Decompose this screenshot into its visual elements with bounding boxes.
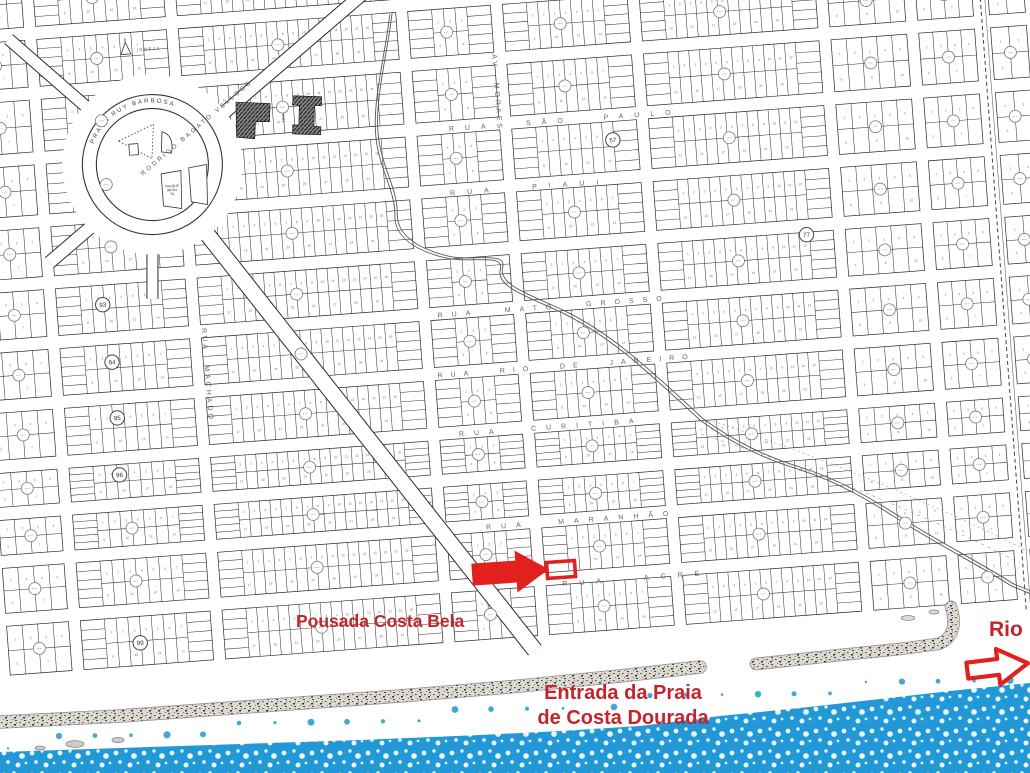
lot-number: 13 bbox=[701, 445, 705, 449]
lot-number: 10 bbox=[786, 305, 790, 309]
map-block bbox=[32, 0, 165, 26]
lot-number: 13 bbox=[361, 397, 365, 401]
lot-number: 29 bbox=[371, 517, 375, 521]
lot-number: 10 bbox=[555, 35, 559, 39]
lot-number: 29 bbox=[340, 115, 344, 119]
lot-number: 10 bbox=[598, 618, 602, 622]
rio-label: Rio bbox=[989, 618, 1023, 642]
block-number-ring bbox=[290, 288, 303, 301]
lot-number: 15 bbox=[364, 152, 368, 156]
lot-number: 16 bbox=[366, 26, 370, 30]
lot-number: 27 bbox=[333, 302, 337, 306]
lot-number: 19 bbox=[764, 440, 768, 444]
lot-number: 13 bbox=[713, 609, 717, 613]
lot-number: 21 bbox=[782, 389, 786, 393]
block-number-ring bbox=[33, 642, 46, 655]
lot-number: 10 bbox=[86, 10, 90, 14]
lot-number: 17 bbox=[739, 392, 743, 396]
lot-number: 29 bbox=[345, 178, 349, 182]
lot-number: 23 bbox=[300, 425, 304, 429]
lot-number: 10 bbox=[590, 501, 594, 505]
block-number-ring bbox=[468, 395, 481, 408]
lot-number: 27 bbox=[329, 242, 333, 246]
lot-number: 12 bbox=[616, 555, 620, 559]
plaza-bed2 bbox=[189, 165, 210, 206]
block-number-ring bbox=[965, 357, 978, 370]
lot-number: 12 bbox=[362, 552, 366, 556]
lot-number: 11 bbox=[793, 244, 797, 248]
block-number-ring bbox=[723, 131, 736, 144]
block-number: 94 bbox=[108, 359, 116, 367]
lot-number: 16 bbox=[397, 450, 401, 454]
lot-number: 19 bbox=[265, 525, 269, 529]
lot-number: 12 bbox=[114, 68, 118, 72]
lot-number: 19 bbox=[239, 186, 243, 190]
lot-number: 10 bbox=[91, 70, 95, 74]
lot-number: 17 bbox=[240, 479, 244, 483]
sea-spray-dot bbox=[418, 719, 421, 722]
lot-number: 21 bbox=[295, 641, 299, 645]
map-canvas: 1523741823104512671411723194521672389251… bbox=[0, 0, 1030, 773]
block-number-ring bbox=[969, 411, 982, 424]
block-number-ring bbox=[869, 120, 882, 133]
lot-number: 12 bbox=[137, 377, 141, 381]
lot-number: 10 bbox=[905, 136, 909, 140]
lot-number: 21 bbox=[282, 476, 286, 480]
lot-number: 17 bbox=[232, 370, 236, 374]
map-block bbox=[502, 0, 630, 51]
lot-number: 19 bbox=[733, 21, 737, 25]
lot-number: 12 bbox=[145, 486, 149, 490]
lot-number: 13 bbox=[369, 500, 373, 504]
lot-number: 23 bbox=[780, 82, 784, 86]
lot-number: 13 bbox=[674, 90, 678, 94]
block-number-ring bbox=[286, 227, 299, 240]
lot-number: 17 bbox=[716, 87, 720, 91]
lot-number: 11 bbox=[788, 183, 792, 187]
lot-number: 10 bbox=[900, 73, 904, 77]
block-number-ring bbox=[1009, 110, 1022, 123]
block-number-ring bbox=[713, 5, 726, 18]
lot-number: 23 bbox=[794, 268, 798, 272]
lot-number: 13 bbox=[669, 26, 673, 30]
lot-number: 10 bbox=[307, 92, 311, 96]
lot-number: 12 bbox=[333, 154, 337, 158]
block-number-ring bbox=[745, 427, 758, 440]
lot-number: 14 bbox=[608, 159, 612, 163]
islet bbox=[66, 741, 84, 748]
sea-spray-dot bbox=[200, 731, 206, 737]
lot-number: 10 bbox=[795, 421, 799, 425]
lot-number: 19 bbox=[752, 271, 756, 275]
lot-number: 21 bbox=[777, 329, 781, 333]
city-grid: 1523741823104512671411723194521672389251… bbox=[0, 0, 1030, 690]
block-number-ring bbox=[895, 464, 908, 477]
lot-number: 13 bbox=[708, 548, 712, 552]
islet bbox=[35, 746, 45, 750]
beach-entrance-line2: de Costa Dourada bbox=[498, 706, 748, 731]
block-number-ring bbox=[311, 561, 324, 574]
lot-number: 13 bbox=[352, 277, 356, 281]
map-block bbox=[1018, 394, 1030, 431]
lot-number: 23 bbox=[790, 207, 794, 211]
lot-number: 17 bbox=[252, 644, 256, 648]
lot-number: 19 bbox=[772, 543, 776, 547]
block-number-ring bbox=[126, 522, 139, 535]
lot-number: 15 bbox=[722, 443, 726, 447]
block-number-ring bbox=[299, 407, 312, 420]
lot-number: 15 bbox=[734, 608, 738, 612]
lot-number: 21 bbox=[764, 147, 768, 151]
lot-number: 16 bbox=[405, 548, 409, 552]
lot-number: 17 bbox=[726, 212, 730, 216]
sea-spray-dot bbox=[828, 692, 832, 696]
lot-number: 14 bbox=[638, 553, 642, 557]
lot-number: 19 bbox=[768, 488, 772, 492]
lot-number: 12 bbox=[789, 55, 793, 59]
lot-number: 23 bbox=[775, 18, 779, 22]
lot-number: 31 bbox=[357, 50, 361, 54]
lot-number: 12 bbox=[577, 33, 581, 37]
beach-entrance-label: Entrada da Praia de Costa Dourada bbox=[498, 681, 748, 730]
block-number-ring bbox=[947, 114, 960, 127]
lot-number: 13 bbox=[697, 395, 701, 399]
lot-number: 21 bbox=[759, 84, 763, 88]
lot-number: 14 bbox=[368, 336, 372, 340]
lot-number: 14 bbox=[598, 32, 602, 36]
block-number-ring bbox=[3, 248, 16, 261]
lot-number: 27 bbox=[358, 636, 362, 640]
lot-number: 15 bbox=[369, 214, 373, 218]
lot-number: 31 bbox=[366, 177, 370, 181]
lot-number: 12 bbox=[133, 317, 137, 321]
lot-number: 14 bbox=[133, 6, 137, 10]
lot-number: 12 bbox=[149, 534, 153, 538]
lot-number: 17 bbox=[721, 150, 725, 154]
lot-number: 10 bbox=[109, 319, 113, 323]
block-number-ring bbox=[753, 528, 766, 541]
map-block bbox=[1025, 489, 1030, 537]
lot-number: 12 bbox=[328, 90, 332, 94]
lot-number: 11 bbox=[327, 218, 331, 222]
lot-number: 13 bbox=[692, 335, 696, 339]
map-block bbox=[986, 0, 1025, 15]
lot-number: 29 bbox=[350, 240, 354, 244]
lot-number: 19 bbox=[747, 211, 751, 215]
lot-number: 14 bbox=[161, 375, 165, 379]
lot-number: 23 bbox=[303, 475, 307, 479]
block-number: 57 bbox=[609, 137, 617, 145]
block-number-ring bbox=[28, 582, 41, 595]
lot-number: 16 bbox=[380, 214, 384, 218]
block-number-ring bbox=[878, 243, 891, 256]
block-number-ring bbox=[737, 314, 750, 327]
lot-number: 14 bbox=[622, 341, 626, 345]
lot-number: 12 bbox=[799, 182, 803, 186]
lot-number: 12 bbox=[337, 217, 341, 221]
lot-number: 10 bbox=[114, 379, 118, 383]
sea-spray-dot bbox=[237, 721, 242, 726]
lot-number: 14 bbox=[603, 95, 607, 99]
lot-number: 19 bbox=[248, 309, 252, 313]
lot-number: 10 bbox=[910, 198, 914, 202]
lot-number: 12 bbox=[812, 363, 816, 367]
lot-number: 19 bbox=[225, 0, 229, 3]
lot-number: 15 bbox=[725, 491, 729, 495]
lot-number: 21 bbox=[773, 269, 777, 273]
lot-number: 15 bbox=[374, 276, 378, 280]
beach-entrance-line1: Entrada da Praia bbox=[498, 681, 748, 706]
lot-number: 17 bbox=[208, 61, 212, 65]
sea-spray-dot bbox=[381, 719, 385, 723]
lot-number: 15 bbox=[714, 334, 718, 338]
block-number-ring bbox=[24, 529, 37, 542]
block-number-ring bbox=[12, 369, 25, 382]
lot-number: 29 bbox=[379, 634, 383, 638]
lot-number: 23 bbox=[807, 437, 811, 441]
block-number-ring bbox=[864, 56, 877, 69]
block-number-ring bbox=[307, 508, 320, 521]
lot-number: 14 bbox=[354, 153, 358, 157]
sea-spray-dot bbox=[93, 733, 98, 738]
lot-number: 12 bbox=[600, 342, 604, 346]
lot-number: 21 bbox=[798, 603, 802, 607]
lot-number: 10 bbox=[586, 453, 590, 457]
lot-number: 12 bbox=[824, 517, 828, 521]
lot-number: 11 bbox=[336, 339, 340, 343]
lot-number: 19 bbox=[742, 149, 746, 153]
islet bbox=[112, 737, 124, 742]
lot-number: 10 bbox=[919, 318, 923, 322]
lot-number: 31 bbox=[396, 572, 400, 576]
lot-number: 16 bbox=[384, 275, 388, 279]
block-number-ring bbox=[727, 194, 740, 207]
map-page: 1523741823104512671411723194521672389251… bbox=[0, 0, 1030, 773]
lot-number: 23 bbox=[311, 578, 315, 582]
lot-number: 10 bbox=[569, 224, 573, 228]
lot-number: 19 bbox=[261, 478, 265, 482]
lot-number: 16 bbox=[370, 87, 374, 91]
sea-spray-dot bbox=[344, 719, 350, 725]
block-number-ring bbox=[732, 254, 745, 267]
block-number-ring bbox=[100, 178, 113, 191]
lot-number: 23 bbox=[286, 245, 290, 249]
lot-number: 10 bbox=[782, 245, 786, 249]
block-number-ring bbox=[454, 214, 467, 227]
lot-number: 17 bbox=[730, 272, 734, 276]
block-number-ring bbox=[276, 101, 289, 114]
lot-number: 11 bbox=[818, 577, 822, 581]
lot-number: 21 bbox=[278, 427, 282, 431]
block-number-ring bbox=[90, 52, 103, 65]
lot-number: 29 bbox=[359, 360, 363, 364]
block-number: 77 bbox=[803, 232, 811, 240]
lot-number: 23 bbox=[815, 540, 819, 544]
block-number-ring bbox=[582, 386, 595, 399]
lot-number: 14 bbox=[642, 615, 646, 619]
lot-number: 27 bbox=[314, 53, 318, 57]
lot-number: 21 bbox=[290, 580, 294, 584]
lot-number: 19 bbox=[777, 604, 781, 608]
lot-number: 12 bbox=[620, 616, 624, 620]
lot-number: 14 bbox=[156, 316, 160, 320]
lot-number: 10 bbox=[130, 592, 134, 596]
lot-number: 29 bbox=[335, 51, 339, 55]
lot-number: 27 bbox=[354, 575, 358, 579]
block-number-ring bbox=[17, 429, 30, 442]
lot-number: 29 bbox=[354, 301, 358, 305]
lot-number: 13 bbox=[343, 153, 347, 157]
lot-number: 12 bbox=[359, 501, 363, 505]
lot-number: 25 bbox=[307, 244, 311, 248]
lot-number: 10 bbox=[772, 121, 776, 125]
lot-number: 16 bbox=[393, 394, 397, 398]
islet bbox=[901, 616, 915, 621]
lot-number: 14 bbox=[626, 401, 630, 405]
lot-number: 12 bbox=[604, 402, 608, 406]
lot-number: 23 bbox=[316, 639, 320, 643]
block-number-ring bbox=[480, 548, 493, 561]
block-number: 99 bbox=[137, 640, 145, 648]
lot-number: 12 bbox=[158, 651, 162, 655]
block-number-ring bbox=[598, 600, 611, 613]
block-number-ring bbox=[903, 577, 916, 590]
lot-number: 13 bbox=[334, 28, 338, 32]
lot-number: 31 bbox=[371, 239, 375, 243]
lot-number: 19 bbox=[257, 428, 261, 432]
sea-spray-dot bbox=[452, 706, 459, 713]
lot-number: 10 bbox=[935, 531, 939, 535]
block-number-ring bbox=[484, 608, 497, 621]
block-number: 95 bbox=[114, 415, 122, 423]
lot-number: 17 bbox=[755, 606, 759, 610]
sea-spray-dot bbox=[163, 731, 170, 738]
lot-number: 10 bbox=[777, 184, 781, 188]
lot-number: 11 bbox=[322, 155, 326, 159]
lot-number: 29 bbox=[367, 470, 371, 474]
lot-number: 10 bbox=[896, 9, 900, 13]
lot-number: 11 bbox=[348, 502, 352, 506]
lot-number: 10 bbox=[311, 156, 315, 160]
lot-number: 10 bbox=[578, 344, 582, 348]
lot-number: 17 bbox=[243, 527, 247, 531]
map-block bbox=[0, 0, 24, 32]
lot-number: 12 bbox=[808, 303, 812, 307]
lot-number: 13 bbox=[348, 216, 352, 220]
lot-number: 10 bbox=[791, 365, 795, 369]
lot-number: 12 bbox=[153, 590, 157, 594]
block-number-ring bbox=[593, 540, 606, 553]
lot-number: 17 bbox=[248, 583, 252, 587]
lot-number: 15 bbox=[730, 547, 734, 551]
lot-number: 21 bbox=[260, 185, 264, 189]
lot-number: 15 bbox=[709, 274, 713, 278]
lot-number: 15 bbox=[355, 26, 359, 30]
map-block bbox=[0, 290, 47, 342]
lot-number: 17 bbox=[735, 332, 739, 336]
lot-number: 10 bbox=[321, 280, 325, 284]
lot-number: 25 bbox=[303, 182, 307, 186]
lot-number: 10 bbox=[325, 339, 329, 343]
lot-number: 14 bbox=[349, 88, 353, 92]
block-number-ring bbox=[981, 571, 994, 584]
block-number-ring bbox=[887, 363, 900, 376]
lot-number: 13 bbox=[357, 337, 361, 341]
sea-spray-dot bbox=[273, 721, 276, 724]
lot-number: 25 bbox=[328, 521, 332, 525]
lot-number: 21 bbox=[793, 542, 797, 546]
lot-number: 13 bbox=[373, 551, 377, 555]
lot-number: 15 bbox=[394, 549, 398, 553]
lot-number: 13 bbox=[704, 492, 708, 496]
lot-number: 31 bbox=[392, 516, 396, 520]
sea-spray-dot bbox=[936, 679, 941, 684]
lot-number: 19 bbox=[738, 85, 742, 89]
lot-number: 15 bbox=[360, 88, 364, 92]
lot-number: 27 bbox=[319, 117, 323, 121]
lot-number: 23 bbox=[295, 365, 299, 369]
block-number-ring bbox=[568, 206, 581, 219]
block-number-ring bbox=[749, 475, 762, 488]
lot-number: 14 bbox=[380, 499, 384, 503]
lot-number: 14 bbox=[363, 276, 367, 280]
block-number-ring bbox=[450, 152, 463, 165]
lot-number: 11 bbox=[778, 56, 782, 60]
sea-spray-dot bbox=[129, 733, 133, 737]
block-number-ring bbox=[874, 183, 887, 196]
plaza-kiosk bbox=[129, 144, 139, 156]
map-block bbox=[0, 349, 51, 401]
lot-number: 19 bbox=[253, 368, 257, 372]
lot-number: 13 bbox=[338, 89, 342, 93]
lot-number: 12 bbox=[608, 452, 612, 456]
sea-spray-dot bbox=[7, 747, 9, 749]
lot-number: 10 bbox=[334, 455, 338, 459]
block-number-ring bbox=[21, 482, 34, 495]
block-number-ring bbox=[476, 495, 489, 508]
lot-number: 31 bbox=[375, 299, 379, 303]
lot-number: 13 bbox=[683, 215, 687, 219]
lot-number: 21 bbox=[789, 486, 793, 490]
lot-number: 10 bbox=[105, 259, 109, 263]
lot-number: 14 bbox=[372, 396, 376, 400]
lot-number: 14 bbox=[384, 550, 388, 554]
block-number-ring bbox=[554, 17, 567, 30]
lot-number: 23 bbox=[307, 522, 311, 526]
sea-spray-dot bbox=[56, 733, 62, 739]
lot-number: 15 bbox=[718, 394, 722, 398]
block-number-ring bbox=[445, 88, 458, 101]
lot-number: 15 bbox=[390, 498, 394, 502]
lot-number: 12 bbox=[342, 278, 346, 282]
lot-number: 17 bbox=[236, 430, 240, 434]
block-number-ring bbox=[8, 309, 21, 322]
block-number-ring bbox=[956, 238, 969, 251]
lot-number: 10 bbox=[337, 502, 341, 506]
block-number: 93 bbox=[99, 302, 107, 310]
block-number-ring bbox=[271, 38, 284, 51]
lot-number: 11 bbox=[802, 364, 806, 368]
lot-number: 12 bbox=[581, 97, 585, 101]
block-number-ring bbox=[95, 114, 108, 127]
lot-number: 10 bbox=[802, 519, 806, 523]
lot-number: 10 bbox=[316, 218, 320, 222]
block-number-ring bbox=[303, 461, 316, 474]
lot-number: 12 bbox=[586, 160, 590, 164]
lot-number: 25 bbox=[332, 576, 336, 580]
lot-number: 21 bbox=[286, 524, 290, 528]
lot-number: 21 bbox=[754, 20, 758, 24]
